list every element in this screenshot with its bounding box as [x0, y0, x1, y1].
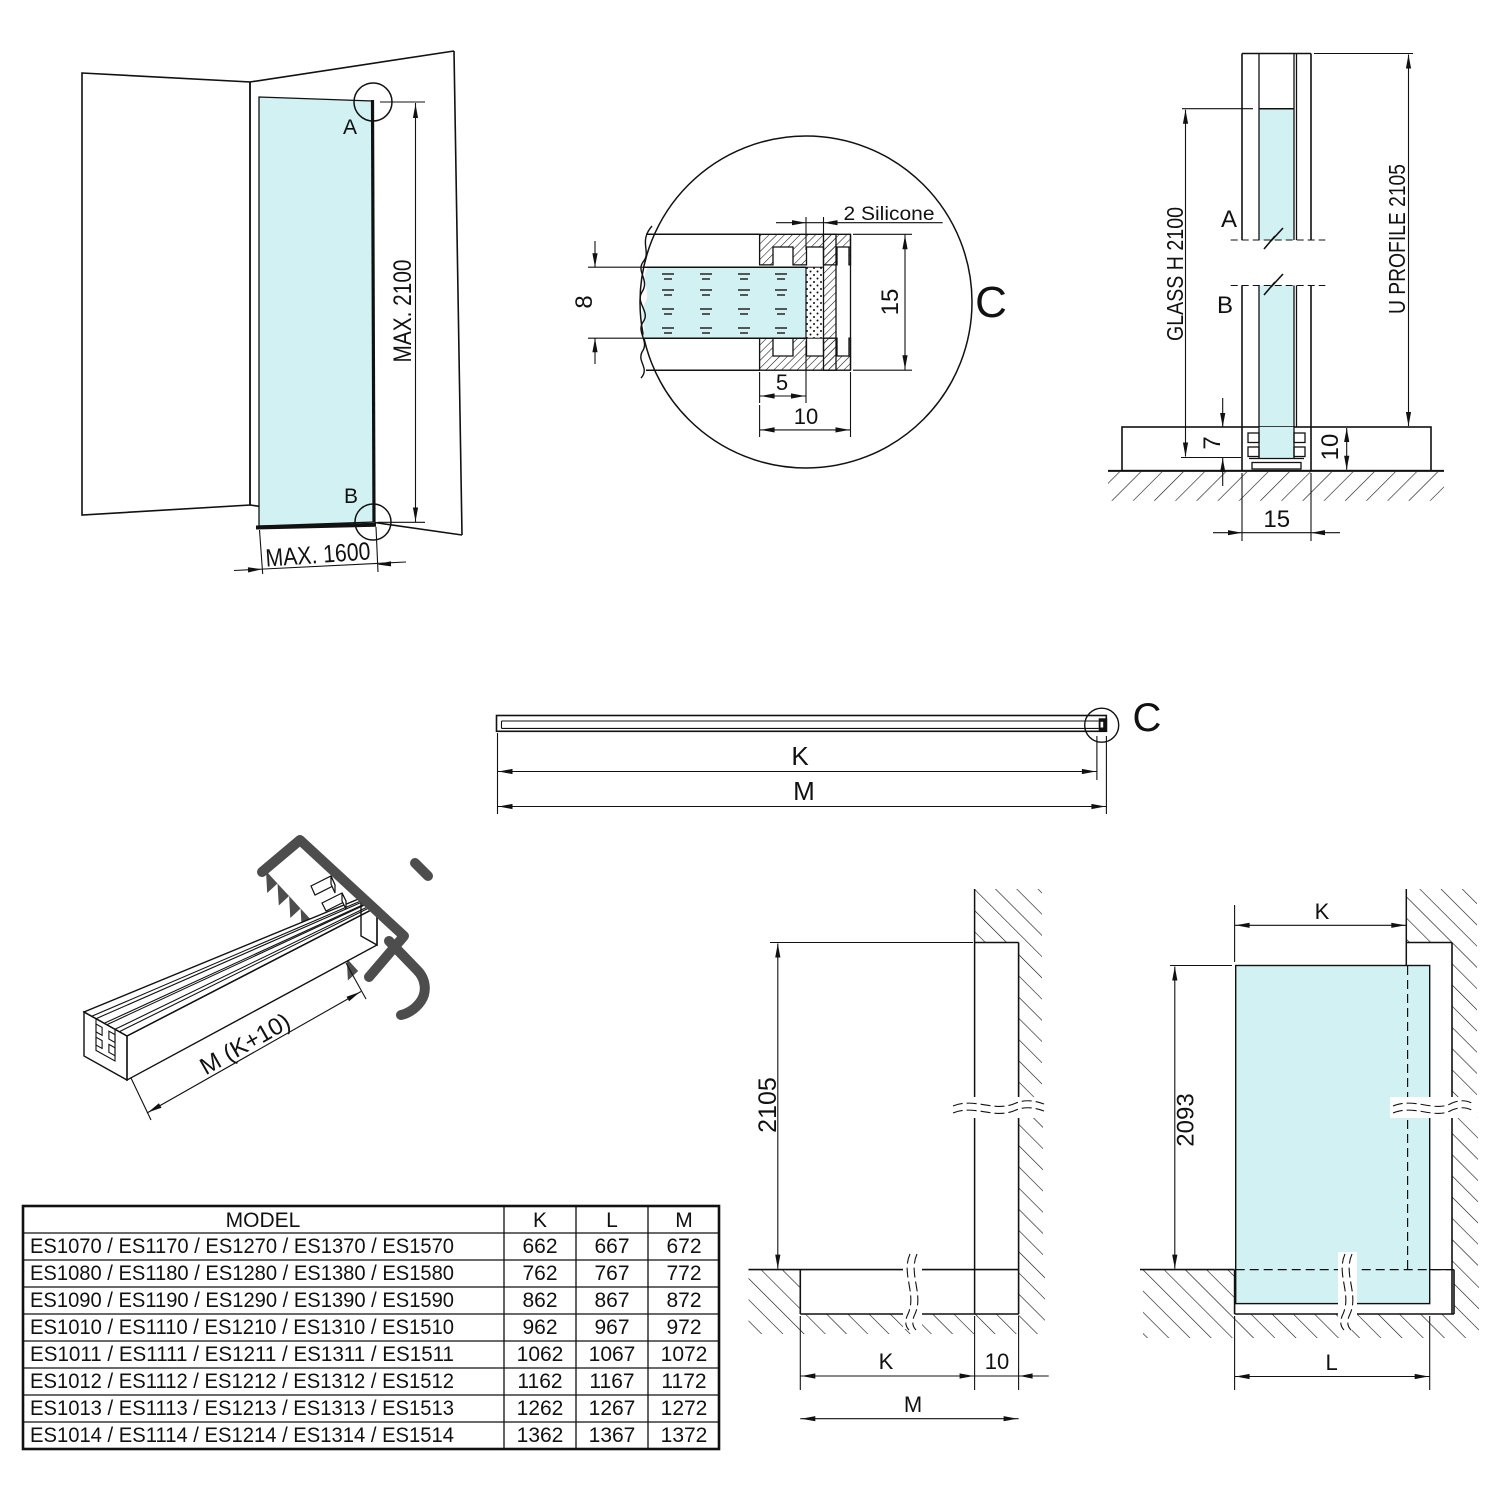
svg-text:M: M — [675, 1209, 693, 1232]
svg-text:ES1014 / ES1114 / ES1214 / ES1: ES1014 / ES1114 / ES1214 / ES1314 / ES15… — [30, 1424, 454, 1447]
svg-text:L: L — [606, 1209, 618, 1232]
svg-text:1272: 1272 — [661, 1397, 708, 1420]
svg-text:ES1012 / ES1112 / ES1212 / ES1: ES1012 / ES1112 / ES1212 / ES1312 / ES15… — [30, 1370, 454, 1393]
svg-text:1362: 1362 — [517, 1424, 564, 1447]
svg-text:K: K — [1315, 899, 1330, 924]
svg-text:2 Silicone: 2 Silicone — [844, 204, 935, 225]
svg-text:10: 10 — [794, 404, 818, 429]
svg-text:MAX. 2100: MAX. 2100 — [389, 260, 417, 363]
svg-text:1262: 1262 — [517, 1397, 564, 1420]
svg-text:862: 862 — [522, 1289, 557, 1312]
svg-text:1372: 1372 — [661, 1424, 708, 1447]
svg-text:ES1090 / ES1190 / ES1290 / ES1: ES1090 / ES1190 / ES1290 / ES1390 / ES15… — [30, 1289, 454, 1312]
svg-text:ES1011 / ES1111 / ES1211 / ES1: ES1011 / ES1111 / ES1211 / ES1311 / ES15… — [30, 1343, 454, 1366]
svg-text:1172: 1172 — [661, 1370, 706, 1393]
svg-text:M: M — [793, 776, 815, 806]
svg-text:5: 5 — [776, 370, 788, 395]
svg-text:ES1080 / ES1180 / ES1280 / ES1: ES1080 / ES1180 / ES1280 / ES1380 / ES15… — [30, 1262, 454, 1285]
svg-text:MAX. 1600: MAX. 1600 — [265, 537, 372, 572]
svg-text:10: 10 — [1317, 434, 1344, 461]
svg-text:ES1070 / ES1170 / ES1270 / ES1: ES1070 / ES1170 / ES1270 / ES1370 / ES15… — [30, 1235, 454, 1258]
svg-text:GLASS H 2100: GLASS H 2100 — [1162, 207, 1188, 341]
svg-text:1072: 1072 — [661, 1343, 708, 1366]
svg-text:B: B — [1217, 292, 1233, 319]
svg-text:C: C — [1133, 696, 1162, 740]
svg-text:2093: 2093 — [1173, 1093, 1200, 1146]
svg-text:B: B — [344, 485, 358, 508]
svg-text:A: A — [343, 116, 357, 139]
svg-text:ES1013 / ES1113 / ES1213 / ES1: ES1013 / ES1113 / ES1213 / ES1313 / ES15… — [30, 1397, 454, 1420]
svg-text:1367: 1367 — [589, 1424, 636, 1447]
svg-text:15: 15 — [877, 289, 904, 316]
svg-text:8: 8 — [571, 295, 598, 308]
svg-text:772: 772 — [666, 1262, 701, 1285]
svg-text:MODEL: MODEL — [226, 1209, 301, 1232]
svg-text:U PROFILE 2105: U PROFILE 2105 — [1384, 164, 1410, 314]
svg-text:1167: 1167 — [589, 1370, 634, 1393]
svg-text:C: C — [975, 278, 1007, 327]
svg-text:1062: 1062 — [517, 1343, 564, 1366]
svg-text:1162: 1162 — [517, 1370, 562, 1393]
svg-text:872: 872 — [666, 1289, 701, 1312]
svg-text:767: 767 — [594, 1262, 629, 1285]
svg-text:M: M — [904, 1392, 922, 1417]
svg-text:867: 867 — [594, 1289, 629, 1312]
svg-text:2105: 2105 — [754, 1077, 782, 1133]
svg-text:K: K — [533, 1209, 547, 1232]
svg-text:967: 967 — [594, 1316, 629, 1339]
svg-text:762: 762 — [522, 1262, 557, 1285]
svg-text:662: 662 — [522, 1235, 557, 1258]
svg-text:K: K — [791, 741, 809, 771]
svg-text:ES1010 / ES1110 / ES1210 / ES1: ES1010 / ES1110 / ES1210 / ES1310 / ES15… — [30, 1316, 454, 1339]
svg-text:972: 972 — [666, 1316, 701, 1339]
svg-text:962: 962 — [522, 1316, 557, 1339]
svg-text:1267: 1267 — [589, 1397, 636, 1420]
svg-text:A: A — [1221, 206, 1237, 233]
svg-text:7: 7 — [1199, 436, 1226, 449]
svg-text:672: 672 — [666, 1235, 701, 1258]
svg-text:10: 10 — [985, 1349, 1009, 1374]
svg-text:K: K — [879, 1349, 894, 1374]
svg-text:L: L — [1325, 1350, 1337, 1375]
svg-text:667: 667 — [594, 1235, 629, 1258]
svg-text:1067: 1067 — [589, 1343, 636, 1366]
svg-text:15: 15 — [1263, 506, 1290, 533]
